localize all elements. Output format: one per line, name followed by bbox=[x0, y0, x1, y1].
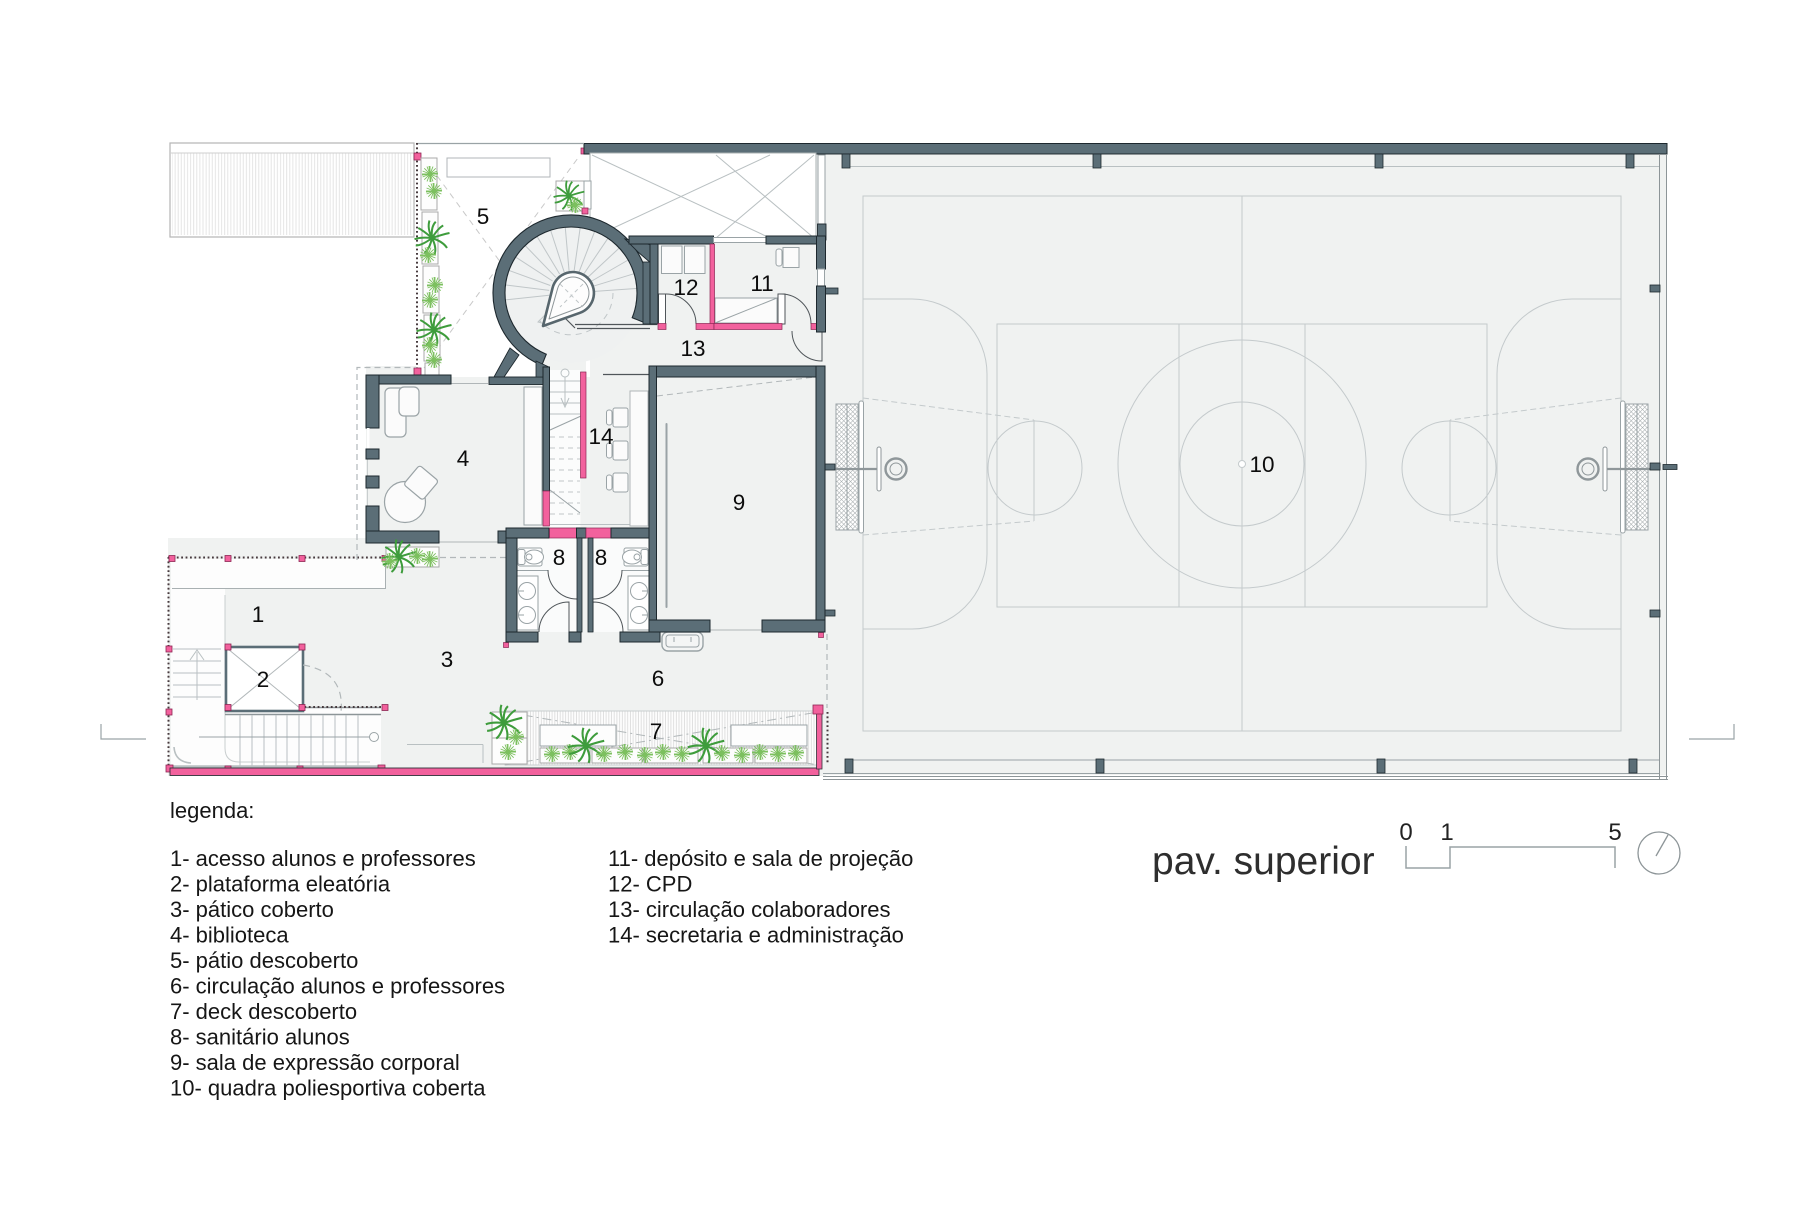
svg-text:7- deck descoberto: 7- deck descoberto bbox=[170, 999, 357, 1024]
svg-text:7: 7 bbox=[650, 719, 663, 744]
svg-text:14: 14 bbox=[588, 424, 613, 449]
svg-text:12- CPD: 12- CPD bbox=[608, 872, 692, 897]
svg-text:2- plataforma eleatória: 2- plataforma eleatória bbox=[170, 872, 391, 897]
svg-text:5: 5 bbox=[477, 204, 490, 229]
svg-text:6- circulação alunos e profess: 6- circulação alunos e professores bbox=[170, 974, 505, 999]
svg-text:0: 0 bbox=[1399, 819, 1412, 846]
svg-text:1: 1 bbox=[1440, 819, 1453, 846]
svg-text:5- pátio descoberto: 5- pátio descoberto bbox=[170, 948, 358, 973]
svg-text:4- biblioteca: 4- biblioteca bbox=[170, 923, 289, 948]
svg-text:9- sala de expressão corporal: 9- sala de expressão corporal bbox=[170, 1050, 460, 1075]
svg-text:11- depósito e sala de projeçã: 11- depósito e sala de projeção bbox=[608, 846, 913, 871]
svg-text:4: 4 bbox=[457, 446, 470, 471]
svg-text:8: 8 bbox=[595, 545, 608, 570]
svg-text:3: 3 bbox=[441, 647, 454, 672]
svg-text:14- secretaria e administração: 14- secretaria e administração bbox=[608, 923, 904, 948]
svg-text:9: 9 bbox=[733, 490, 746, 515]
svg-text:8: 8 bbox=[553, 545, 566, 570]
svg-text:13- circulação colaboradores: 13- circulação colaboradores bbox=[608, 897, 891, 922]
svg-text:12: 12 bbox=[673, 275, 698, 300]
svg-text:6: 6 bbox=[652, 666, 665, 691]
svg-text:1: 1 bbox=[252, 602, 265, 627]
svg-text:legenda:: legenda: bbox=[170, 798, 254, 823]
svg-text:10- quadra poliesportiva cober: 10- quadra poliesportiva coberta bbox=[170, 1076, 486, 1101]
svg-text:13: 13 bbox=[680, 336, 705, 361]
svg-text:8- sanitário alunos: 8- sanitário alunos bbox=[170, 1025, 350, 1050]
svg-text:11: 11 bbox=[750, 271, 773, 296]
svg-text:10: 10 bbox=[1249, 452, 1274, 477]
svg-text:3- pático coberto: 3- pático coberto bbox=[170, 897, 334, 922]
svg-text:1- acesso alunos e professores: 1- acesso alunos e professores bbox=[170, 846, 476, 871]
svg-text:5: 5 bbox=[1608, 819, 1621, 846]
svg-text:2: 2 bbox=[257, 667, 270, 692]
svg-text:pav. superior: pav. superior bbox=[1152, 840, 1375, 883]
